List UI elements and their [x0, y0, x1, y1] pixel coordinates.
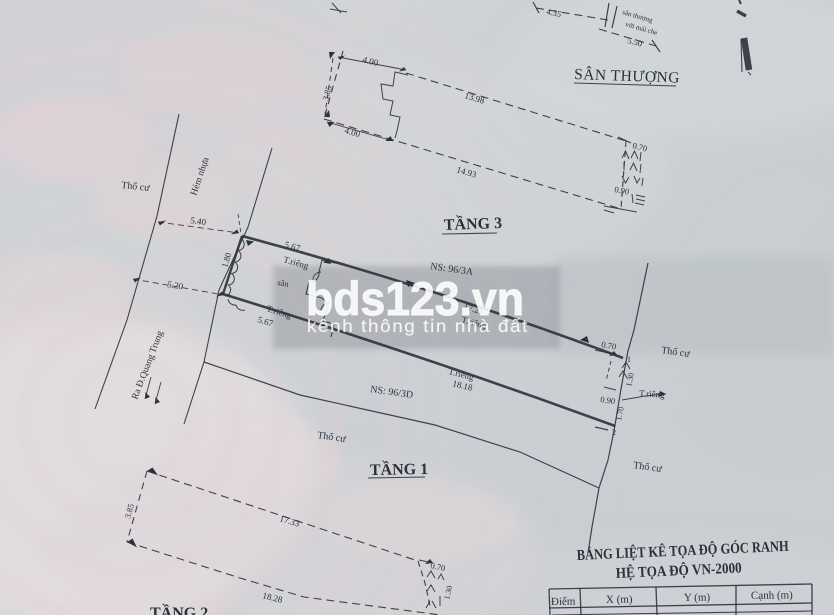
svg-text:0.90: 0.90	[600, 394, 616, 406]
svg-text:Điểm: Điểm	[551, 596, 576, 608]
svg-text:1: 1	[627, 355, 631, 364]
svg-text:2: 2	[612, 428, 616, 437]
svg-text:X (m): X (m)	[606, 594, 633, 606]
svg-text:Y (m): Y (m)	[684, 592, 711, 604]
svg-text:TẦNG 2: TẦNG 2	[150, 603, 208, 615]
svg-text:TẦNG 3: TẦNG 3	[443, 213, 502, 234]
svg-text:Cạnh (m): Cạnh (m)	[751, 589, 793, 602]
svg-text:TẦNG 1: TẦNG 1	[370, 459, 429, 479]
svg-text:kênh thông tin nhà đất: kênh thông tin nhà đất	[307, 316, 529, 336]
svg-text:T.riêng: T.riêng	[639, 388, 666, 400]
